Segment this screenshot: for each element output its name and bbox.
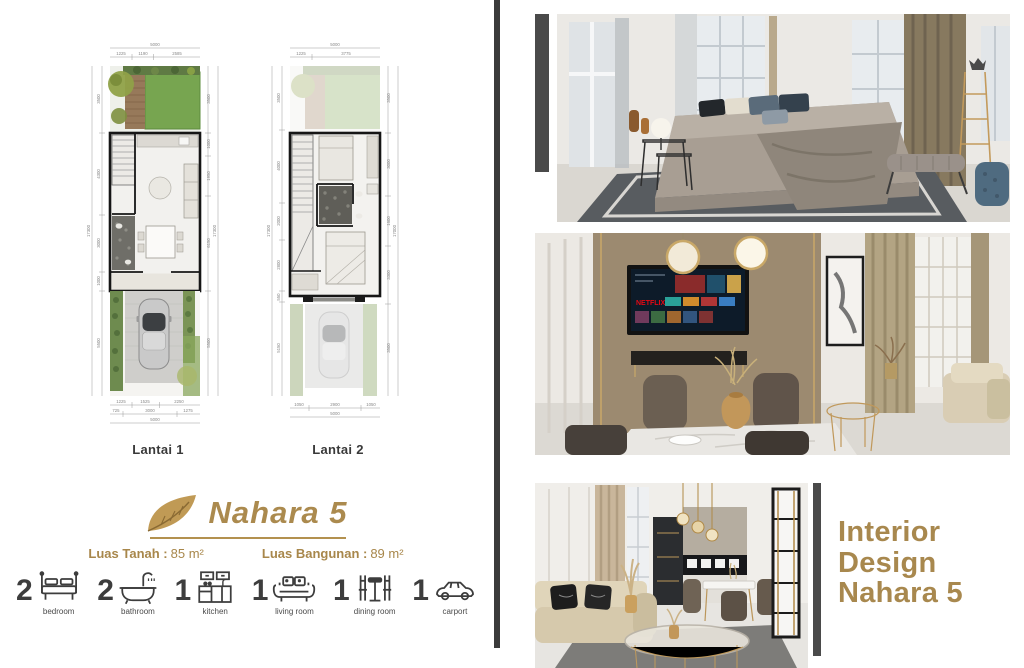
building-area: Luas Bangunan :89 m² xyxy=(262,546,404,561)
dimensions-right: 3500 1000 1950 6150 5500 17300 xyxy=(205,66,218,396)
feature-bathroom: 2 bathroom xyxy=(97,570,159,616)
living-room-render-photo xyxy=(535,483,808,668)
dim-label: 17000 xyxy=(392,224,397,237)
feature-bedroom: 2 bedroom xyxy=(16,570,82,616)
chair xyxy=(683,579,701,613)
floorplan-lantai-1-caption: Lantai 1 xyxy=(83,442,233,457)
dining-table-icon xyxy=(353,570,397,606)
land-area-value: 85 m² xyxy=(171,546,204,561)
dim-label: 1950 xyxy=(206,171,211,181)
floorplan-lantai-1-drawing: 5000 1225 1190 2585 17300 3500 4300 3000… xyxy=(83,36,233,436)
car-top-view xyxy=(137,299,172,369)
dim-label: 4000 xyxy=(276,161,281,171)
dim-label: 1050 xyxy=(294,402,304,407)
dim-label: 3500 xyxy=(276,93,281,103)
dim-label: 5150 xyxy=(276,343,281,353)
dim-label: 3500 xyxy=(386,93,391,103)
dim-label: 1275 xyxy=(183,408,193,413)
floorplan-lantai-1: 5000 1225 1190 2585 17300 3500 4300 3000… xyxy=(83,36,233,457)
land-area: Luas Tanah :85 m² xyxy=(88,546,203,561)
dim-label: 2900 xyxy=(330,402,340,407)
stairs xyxy=(112,135,135,185)
dim-label: 5500 xyxy=(206,338,211,348)
brochure-page: 5000 1225 1190 2585 17300 3500 4300 3000… xyxy=(0,0,1024,668)
interior-design-title: Interior Design Nahara 5 xyxy=(838,517,963,609)
dim-label: 17300 xyxy=(266,224,271,237)
bush-icon xyxy=(177,366,197,386)
chair xyxy=(565,425,627,455)
dimensions-left: 17300 3500 4000 2000 2800 550 5150 xyxy=(266,66,285,396)
dim-label: 3000 xyxy=(145,408,155,413)
title-line-3: Nahara 5 xyxy=(838,578,963,609)
building-area-label: Luas Bangunan : xyxy=(262,546,367,561)
gold-leaf-icon xyxy=(145,492,199,534)
dim-label: 3300 xyxy=(386,270,391,280)
chair xyxy=(753,373,799,431)
garden-area xyxy=(108,66,200,133)
dim-label: 1600 xyxy=(386,216,391,226)
dim-label: 3000 xyxy=(96,238,101,248)
car-top-view xyxy=(319,312,349,378)
dim-label: 17300 xyxy=(86,224,91,237)
dim-label: 2000 xyxy=(276,216,281,226)
area-stats: Luas Tanah :85 m² Luas Bangunan :89 m² xyxy=(0,546,492,561)
bed-icon xyxy=(36,570,82,606)
dimensions-bottom: 1225 1525 2250 725 3000 1275 5000 xyxy=(110,399,200,423)
bathroom-count: 2 xyxy=(97,576,114,606)
brand-block: Nahara 5 xyxy=(0,492,492,534)
dim-label: 5000 xyxy=(330,42,340,47)
feature-row: 2 bedroom 2 xyxy=(16,570,478,616)
dim-label: 6150 xyxy=(206,238,211,248)
dimensions-bottom: 1050 2900 1050 5000 xyxy=(290,402,380,417)
bathtub-icon xyxy=(117,570,159,606)
dim-label: 2800 xyxy=(276,260,281,270)
carport-area-faded xyxy=(290,304,377,396)
dim-label: 1225 xyxy=(296,51,306,56)
dim-label: 5000 xyxy=(150,417,160,422)
dining-room-render-scene: NETFLIX xyxy=(535,233,1010,455)
kitchen-count: 1 xyxy=(175,576,192,606)
chair xyxy=(643,375,687,431)
title-line-2: Design xyxy=(838,548,963,579)
living-room-render-scene xyxy=(535,483,808,668)
dim-label: 2585 xyxy=(172,51,182,56)
netflix-logo: NETFLIX xyxy=(636,300,665,307)
dim-label: 1050 xyxy=(366,402,376,407)
dining-table xyxy=(146,226,175,258)
bedroom-render-photo xyxy=(557,14,1010,222)
dimensions-top: 5000 1225 3775 xyxy=(290,42,380,60)
dim-label: 3500 xyxy=(386,343,391,353)
dim-label: 3000 xyxy=(386,159,391,169)
feature-living-room: 1 living room xyxy=(252,570,318,616)
amber-vase xyxy=(629,110,639,132)
feature-dining-room: 1 dining room xyxy=(333,570,397,616)
tv: NETFLIX xyxy=(627,265,749,335)
dim-label: 1225 xyxy=(116,51,126,56)
floorplan-lantai-2: 5000 1225 3775 17300 3500 4000 2000 2800… xyxy=(263,36,413,457)
dim-label: 3500 xyxy=(206,94,211,104)
kitchen-cabinet-icon xyxy=(194,570,236,606)
dim-label: 550 xyxy=(276,293,281,301)
title-line-1: Interior xyxy=(838,517,963,548)
entry-porch xyxy=(112,274,199,290)
brand-name: Nahara 5 xyxy=(209,495,348,531)
floorplan-lantai-2-caption: Lantai 2 xyxy=(263,442,413,457)
dim-label: 5500 xyxy=(96,338,101,348)
carport-label: carport xyxy=(442,607,467,616)
sofa xyxy=(943,363,1010,423)
bedroom-count: 2 xyxy=(16,576,33,606)
table-lamp xyxy=(651,118,671,138)
floor2-building xyxy=(290,133,380,302)
dim-label: 725 xyxy=(112,408,120,413)
dim-label: 4300 xyxy=(96,169,101,179)
brand-underline xyxy=(150,537,346,539)
tree-icon xyxy=(111,108,127,124)
dimensions-top: 5000 1225 1190 2585 xyxy=(110,42,200,60)
dim-label: 1525 xyxy=(140,399,150,404)
knit-pouf xyxy=(975,162,1009,206)
living-room-count: 1 xyxy=(252,576,269,606)
photo-accent-bar-top xyxy=(535,14,549,172)
dim-label: 1000 xyxy=(206,139,211,149)
carport-area xyxy=(110,291,200,396)
dim-label: 3775 xyxy=(341,51,351,56)
bedroom-render-scene xyxy=(557,14,1010,222)
bathroom-label: bathroom xyxy=(121,607,155,616)
carport-count: 1 xyxy=(412,576,429,606)
dimensions-right: 3500 3000 1600 3300 3500 17000 xyxy=(385,66,398,396)
kitchen-counter xyxy=(137,135,198,147)
dim-label: 3500 xyxy=(96,94,101,104)
dining-room-render-photo: NETFLIX xyxy=(535,233,1010,455)
car-icon xyxy=(432,570,478,606)
living-room-label: living room xyxy=(275,607,314,616)
building-area-value: 89 m² xyxy=(370,546,403,561)
dim-label: 5000 xyxy=(330,411,340,416)
dimensions-left: 17300 3500 4300 3000 1000 5500 xyxy=(86,66,105,396)
dim-label: 17300 xyxy=(212,224,217,237)
dim-label: 2250 xyxy=(174,399,184,404)
kitchen-label: kitchen xyxy=(203,607,228,616)
dim-label: 1190 xyxy=(138,51,148,56)
dim-label: 1000 xyxy=(96,276,101,286)
floor1-building xyxy=(110,133,200,291)
feature-carport: 1 carport xyxy=(412,570,478,616)
chair xyxy=(745,431,809,455)
bathroom xyxy=(112,216,135,270)
dining-room-count: 1 xyxy=(333,576,350,606)
chair xyxy=(721,591,747,621)
photo-accent-bar-bottom xyxy=(813,483,821,656)
media-console xyxy=(631,351,747,365)
tall-window-right xyxy=(773,489,799,637)
bedroom-label: bedroom xyxy=(43,607,75,616)
dim-label: 1225 xyxy=(116,399,126,404)
land-area-label: Luas Tanah : xyxy=(88,546,167,561)
stairs xyxy=(292,135,313,271)
amber-vase xyxy=(641,118,649,134)
floorplan-lantai-2-drawing: 5000 1225 3775 17300 3500 4000 2000 2800… xyxy=(263,36,413,436)
feature-kitchen: 1 kitchen xyxy=(175,570,237,616)
dining-room-label: dining room xyxy=(354,607,396,616)
dim-label: 5000 xyxy=(150,42,160,47)
sofa-icon xyxy=(271,570,317,606)
garden-area-faded xyxy=(290,66,380,133)
vertical-divider xyxy=(494,0,500,648)
